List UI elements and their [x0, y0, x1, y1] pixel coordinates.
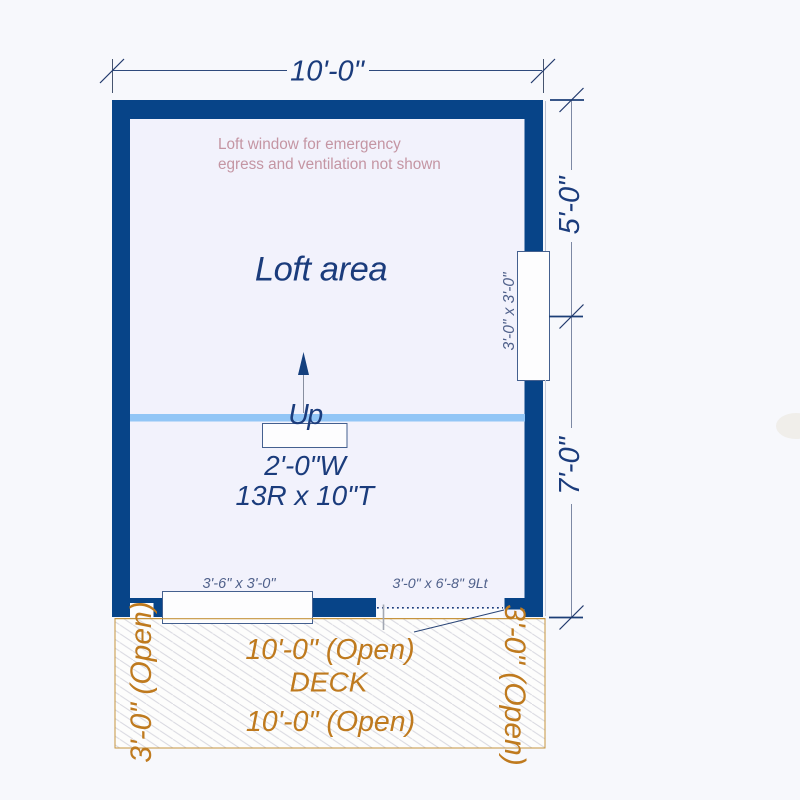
- svg-text:5'-0": 5'-0": [554, 175, 586, 234]
- svg-text:egress and ventilation not sho: egress and ventilation not shown: [218, 156, 441, 173]
- svg-text:2'-0"W: 2'-0"W: [263, 450, 348, 481]
- svg-text:7'-0": 7'-0": [554, 435, 586, 494]
- svg-text:Up: Up: [288, 399, 322, 431]
- svg-text:Loft window for emergency: Loft window for emergency: [218, 136, 401, 153]
- svg-text:10'-0" (Open): 10'-0" (Open): [246, 706, 415, 738]
- svg-text:Loft area: Loft area: [255, 251, 387, 289]
- svg-text:13R x 10"T: 13R x 10"T: [236, 480, 377, 511]
- svg-text:DECK: DECK: [290, 667, 369, 698]
- svg-text:3'-0" x 3'-0": 3'-0" x 3'-0": [501, 271, 518, 351]
- svg-text:3'-0" (Open): 3'-0" (Open): [498, 604, 531, 765]
- svg-text:10'-0": 10'-0": [290, 56, 366, 88]
- svg-text:3'-6" x 3'-0": 3'-6" x 3'-0": [202, 576, 276, 592]
- svg-text:3'-0" (Open): 3'-0" (Open): [125, 601, 158, 762]
- svg-text:3'-0" x 6'-8" 9Lt: 3'-0" x 6'-8" 9Lt: [392, 576, 488, 592]
- svg-text:10'-0" (Open): 10'-0" (Open): [245, 634, 414, 666]
